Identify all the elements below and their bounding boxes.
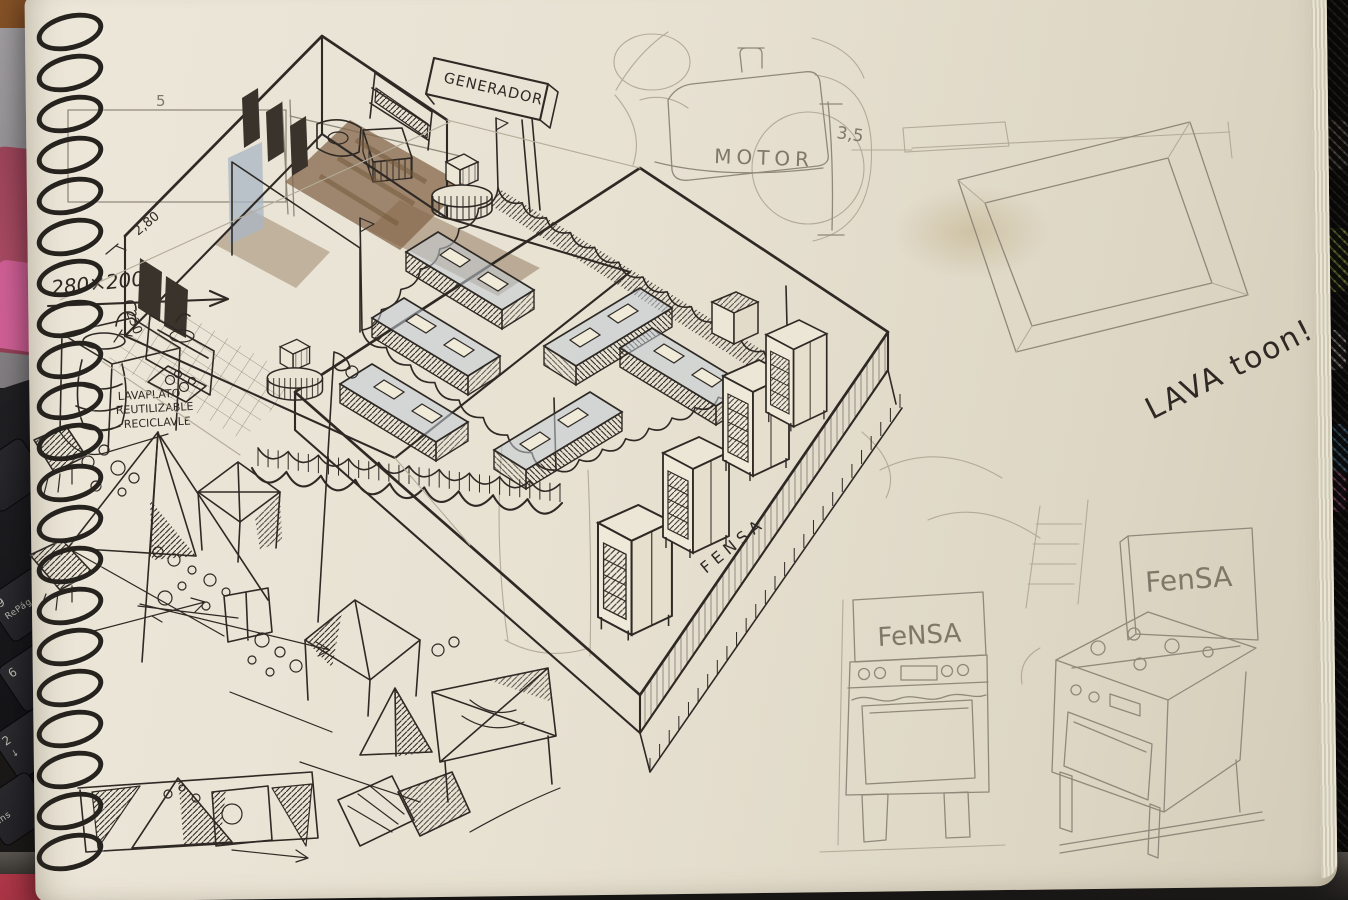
generator-label: GENERADOR [442,70,544,108]
stove-iso-study: FenSA [1021,528,1264,858]
binding-loop [33,252,108,303]
stove-iso-brand: FenSA [1144,560,1233,599]
binding-loop [33,498,108,549]
binding-loop [33,785,108,836]
binding-loop [33,826,108,877]
ladder-study [862,432,1088,608]
stove-front-brand: FeNSA [877,619,962,653]
binding-loop [33,621,108,672]
photo-of-sketchbook: 9 RePág 6 2 ↓ Ins [0,0,1348,900]
spiral-binding [0,0,130,900]
lava-toon-note: LAVA toon! [1140,312,1320,427]
height-dimension: 2,80 [131,209,163,239]
binding-loop [33,6,108,57]
binding-loop [33,129,108,180]
binding-loop [33,580,108,631]
binding-loop [33,662,108,713]
washer-note-line3: RECICLAVLE [123,415,191,431]
vending-machine [663,437,729,558]
window-marker [228,142,264,244]
binding-loop [33,211,108,262]
binding-loop [33,170,108,221]
tray-study [958,122,1248,352]
binding-loop [33,703,108,754]
binding-loop [33,293,108,344]
vending-machine [766,320,827,431]
binding-loop [33,334,108,385]
binding-loop [33,416,108,467]
binding-loop [33,88,108,139]
binding-loop [33,457,108,508]
motor-label: MOTOR [714,144,815,171]
counter-stand [494,392,622,489]
binding-loop [33,744,108,795]
stool-box [712,292,758,344]
binding-loop [33,539,108,590]
motor-dimension-label: 3,5 [835,123,865,147]
rect-dimension: 5 [156,92,166,110]
motor-study: 3,5 MOTOR [655,48,1232,235]
vending-machine [598,505,672,641]
stove-front-study: FeNSA [820,592,1005,852]
binding-loop [33,375,108,426]
binding-loop [33,47,108,98]
sketch-drawing: 3,5 MOTOR LAVA toon! 5 280×200 [0,0,1348,900]
